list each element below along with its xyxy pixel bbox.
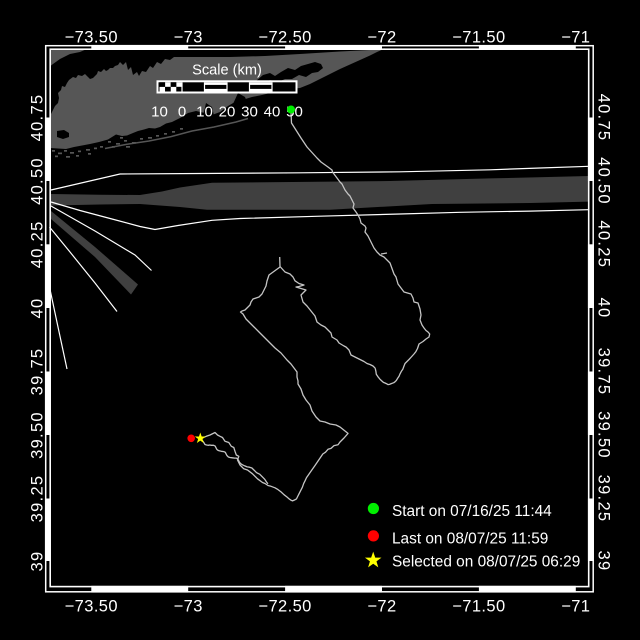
svg-text:40.25: 40.25 [595, 220, 613, 268]
svg-text:Scale (km): Scale (km) [192, 62, 262, 78]
svg-text:−71: −71 [561, 28, 590, 46]
svg-text:39.25: 39.25 [595, 475, 613, 523]
svg-text:40: 40 [264, 104, 281, 121]
svg-text:−72.50: −72.50 [258, 598, 311, 616]
svg-text:40: 40 [29, 298, 47, 319]
svg-text:40: 40 [595, 298, 613, 319]
svg-text:30: 30 [241, 104, 258, 121]
svg-text:−73.50: −73.50 [65, 598, 118, 616]
svg-text:39.75: 39.75 [29, 348, 47, 396]
svg-text:40.75: 40.75 [29, 94, 47, 142]
svg-text:10: 10 [196, 104, 213, 121]
svg-text:40.75: 40.75 [595, 94, 613, 142]
svg-text:40.50: 40.50 [29, 157, 47, 205]
svg-text:39.50: 39.50 [595, 411, 613, 459]
svg-text:Selected on 08/07/25 06:29: Selected on 08/07/25 06:29 [392, 553, 580, 570]
svg-text:−72: −72 [367, 598, 396, 616]
svg-text:40.25: 40.25 [29, 220, 47, 268]
svg-text:−72: −72 [367, 28, 396, 46]
svg-text:−71.50: −71.50 [452, 28, 505, 46]
svg-text:−73.50: −73.50 [65, 28, 118, 46]
svg-text:39: 39 [595, 551, 613, 572]
svg-text:40.50: 40.50 [595, 157, 613, 205]
svg-text:39.25: 39.25 [29, 475, 47, 523]
svg-text:39: 39 [29, 551, 47, 572]
svg-text:Start on 07/16/25 11:44: Start on 07/16/25 11:44 [392, 503, 552, 520]
svg-text:−72.50: −72.50 [258, 28, 311, 46]
svg-text:−73: −73 [174, 28, 203, 46]
svg-text:−71.50: −71.50 [452, 598, 505, 616]
svg-text:−73: −73 [174, 598, 203, 616]
svg-text:39.75: 39.75 [595, 348, 613, 396]
svg-text:Last on 08/07/25 11:59: Last on 08/07/25 11:59 [392, 530, 548, 547]
svg-text:20: 20 [219, 104, 236, 121]
svg-text:0: 0 [178, 104, 186, 121]
svg-text:10: 10 [151, 104, 168, 121]
svg-text:39.50: 39.50 [29, 411, 47, 459]
svg-text:−71: −71 [561, 598, 590, 616]
